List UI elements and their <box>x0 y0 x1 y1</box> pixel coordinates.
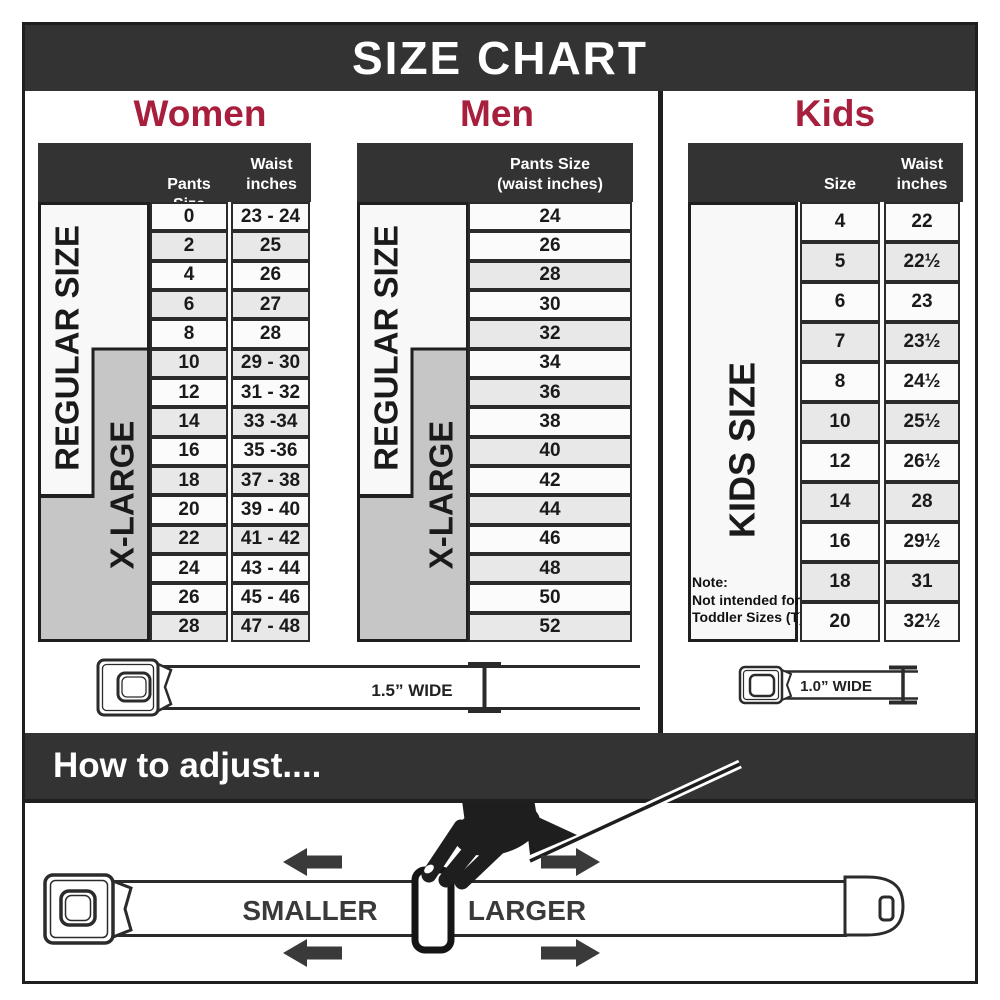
size-cell: 32 <box>468 319 632 348</box>
size-cell: 18 <box>150 466 228 495</box>
table-row: 30 <box>468 290 632 319</box>
adjustment-illustration-section: SMALLER LARGER <box>25 799 975 981</box>
waist-cell: 22 <box>884 202 960 242</box>
size-cell: 24 <box>468 202 632 231</box>
kids-waist-line2: inches <box>897 176 948 193</box>
waist-cell: 47 - 48 <box>231 613 310 642</box>
size-cell: 2 <box>150 231 228 260</box>
waist-cell: 33 -34 <box>231 407 310 436</box>
size-cell: 14 <box>150 407 228 436</box>
pulled-strap-overlay <box>615 735 755 815</box>
size-cell: 44 <box>468 495 632 524</box>
size-cell: 14 <box>800 482 880 522</box>
table-row: 1029 - 30 <box>150 349 310 378</box>
waist-cell: 32½ <box>884 602 960 642</box>
women-regular-size-label: REGULAR SIZE <box>49 225 86 471</box>
waist-cell: 31 - 32 <box>231 378 310 407</box>
size-cell: 12 <box>150 378 228 407</box>
size-cell: 12 <box>800 442 880 482</box>
size-cell: 36 <box>468 378 632 407</box>
table-row: 1837 - 38 <box>150 466 310 495</box>
smaller-arrow-bottom-icon <box>283 939 342 967</box>
waist-cell: 25½ <box>884 402 960 442</box>
waist-cell: 27 <box>231 290 310 319</box>
waist-cell: 28 <box>884 482 960 522</box>
size-cell: 34 <box>468 349 632 378</box>
larger-label: LARGER <box>468 895 586 926</box>
size-cell: 48 <box>468 554 632 583</box>
size-cell: 38 <box>468 407 632 436</box>
larger-arrow-bottom-icon <box>541 939 600 967</box>
waist-cell: 25 <box>231 231 310 260</box>
table-row: 28 <box>468 261 632 290</box>
kids-size-column-header: Size <box>800 175 880 195</box>
table-row: 023 - 24 <box>150 202 310 231</box>
table-row: 52 <box>468 613 632 642</box>
size-cell: 50 <box>468 583 632 612</box>
size-cell: 4 <box>150 261 228 290</box>
table-row: 42 <box>468 466 632 495</box>
size-cell: 8 <box>150 319 228 348</box>
size-cell: 22 <box>150 525 228 554</box>
size-cell: 7 <box>800 322 880 362</box>
size-cell: 28 <box>468 261 632 290</box>
kids-heading: Kids <box>735 93 935 135</box>
note-line2: Not intended for <box>692 592 817 610</box>
size-cell: 40 <box>468 437 632 466</box>
kids-waist-line1: Waist <box>901 156 943 173</box>
table-row: 1629½ <box>800 522 960 562</box>
waist-cell: 35 -36 <box>231 437 310 466</box>
women-xlarge-label: X-LARGE <box>104 421 141 570</box>
size-cell: 18 <box>800 562 880 602</box>
table-row: 50 <box>468 583 632 612</box>
waist-cell: 24½ <box>884 362 960 402</box>
kids-belt-illustration: 1.0” WIDE <box>730 655 930 715</box>
note-line1: Note: <box>692 574 817 592</box>
table-row: 2645 - 46 <box>150 583 310 612</box>
size-cell: 16 <box>800 522 880 562</box>
kids-size-table: 422522½623723½824½1025½1226½14281629½183… <box>800 202 960 642</box>
men-column-header: Pants Size (waist inches) <box>468 155 632 195</box>
table-row: 1025½ <box>800 402 960 442</box>
waist-cell: 28 <box>231 319 310 348</box>
size-cell: 6 <box>800 282 880 322</box>
hand-icon <box>429 803 577 882</box>
men-header-line2: (waist inches) <box>497 176 603 193</box>
table-row: 26 <box>468 231 632 260</box>
size-cell: 20 <box>150 495 228 524</box>
waist-cell: 23 - 24 <box>231 202 310 231</box>
waist-cell: 26 <box>231 261 310 290</box>
table-row: 623 <box>800 282 960 322</box>
page-title: SIZE CHART <box>25 25 975 91</box>
men-size-table: 242628303234363840424446485052 <box>468 202 632 642</box>
table-row: 422 <box>800 202 960 242</box>
women-waist-line1: Waist <box>250 156 292 173</box>
adjustment-illustration: SMALLER LARGER <box>25 803 975 981</box>
kids-note: Note: Not intended for Toddler Sizes (T) <box>692 574 817 627</box>
size-chart-page: SIZE CHART Women Men Kids Pants Size Wai… <box>0 0 1000 1000</box>
table-row: 2039 - 40 <box>150 495 310 524</box>
table-row: 627 <box>150 290 310 319</box>
kids-size-label: KIDS SIZE <box>722 362 763 538</box>
table-row: 2847 - 48 <box>150 613 310 642</box>
size-cell: 30 <box>468 290 632 319</box>
men-heading: Men <box>397 93 597 135</box>
size-cell: 20 <box>800 602 880 642</box>
chart-frame: SIZE CHART Women Men Kids Pants Size Wai… <box>22 22 978 984</box>
adult-belt-illustration: 1.5” WIDE <box>85 654 645 729</box>
waist-cell: 39 - 40 <box>231 495 310 524</box>
waist-cell: 43 - 44 <box>231 554 310 583</box>
section-divider <box>658 91 663 733</box>
women-heading: Women <box>100 93 300 135</box>
women-waist-line2: inches <box>246 176 297 193</box>
table-row: 40 <box>468 437 632 466</box>
table-row: 1231 - 32 <box>150 378 310 407</box>
men-size-group-labels: REGULAR SIZE X-LARGE <box>357 202 469 642</box>
size-cell: 10 <box>150 349 228 378</box>
table-row: 1831 <box>800 562 960 602</box>
table-row: 824½ <box>800 362 960 402</box>
size-cell: 42 <box>468 466 632 495</box>
table-row: 1433 -34 <box>150 407 310 436</box>
size-tables-section: Women Men Kids Pants Size Waist inches P… <box>25 91 975 733</box>
kids-waist-column-header: Waist inches <box>884 155 960 195</box>
how-to-adjust-heading: How to adjust.... <box>25 733 975 799</box>
waist-cell: 22½ <box>884 242 960 282</box>
table-row: 828 <box>150 319 310 348</box>
waist-cell: 45 - 46 <box>231 583 310 612</box>
size-cell: 16 <box>150 437 228 466</box>
waist-cell: 41 - 42 <box>231 525 310 554</box>
table-row: 38 <box>468 407 632 436</box>
size-cell: 6 <box>150 290 228 319</box>
kids-belt-width-label: 1.0” WIDE <box>800 678 872 695</box>
size-cell: 4 <box>800 202 880 242</box>
table-row: 1428 <box>800 482 960 522</box>
waist-cell: 29 - 30 <box>231 349 310 378</box>
smaller-label: SMALLER <box>242 895 377 926</box>
table-row: 225 <box>150 231 310 260</box>
table-row: 24 <box>468 202 632 231</box>
table-row: 48 <box>468 554 632 583</box>
size-cell: 8 <box>800 362 880 402</box>
table-row: 44 <box>468 495 632 524</box>
table-row: 2241 - 42 <box>150 525 310 554</box>
women-waist-column-header: Waist inches <box>232 155 311 195</box>
size-cell: 52 <box>468 613 632 642</box>
waist-cell: 23 <box>884 282 960 322</box>
waist-cell: 29½ <box>884 522 960 562</box>
table-row: 723½ <box>800 322 960 362</box>
table-row: 1635 -36 <box>150 437 310 466</box>
table-row: 36 <box>468 378 632 407</box>
smaller-arrow-top-icon <box>283 848 342 876</box>
waist-cell: 37 - 38 <box>231 466 310 495</box>
table-row: 46 <box>468 525 632 554</box>
table-row: 2443 - 44 <box>150 554 310 583</box>
note-line3: Toddler Sizes (T) <box>692 609 817 627</box>
waist-cell: 23½ <box>884 322 960 362</box>
size-cell: 26 <box>150 583 228 612</box>
men-header-line1: Pants Size <box>510 156 590 173</box>
size-cell: 28 <box>150 613 228 642</box>
waist-cell: 26½ <box>884 442 960 482</box>
women-size-table: 023 - 242254266278281029 - 301231 - 3214… <box>150 202 310 642</box>
table-row: 522½ <box>800 242 960 282</box>
size-cell: 24 <box>150 554 228 583</box>
size-cell: 46 <box>468 525 632 554</box>
table-row: 32 <box>468 319 632 348</box>
table-row: 1226½ <box>800 442 960 482</box>
waist-cell: 31 <box>884 562 960 602</box>
size-cell: 10 <box>800 402 880 442</box>
latch-slot <box>880 897 893 920</box>
table-row: 34 <box>468 349 632 378</box>
women-size-group-labels: REGULAR SIZE X-LARGE <box>38 202 150 642</box>
men-xlarge-label: X-LARGE <box>423 421 460 570</box>
size-cell: 0 <box>150 202 228 231</box>
size-cell: 26 <box>468 231 632 260</box>
size-cell: 5 <box>800 242 880 282</box>
adult-belt-width-label: 1.5” WIDE <box>371 681 452 700</box>
table-row: 426 <box>150 261 310 290</box>
table-row: 2032½ <box>800 602 960 642</box>
men-regular-size-label: REGULAR SIZE <box>368 225 405 471</box>
